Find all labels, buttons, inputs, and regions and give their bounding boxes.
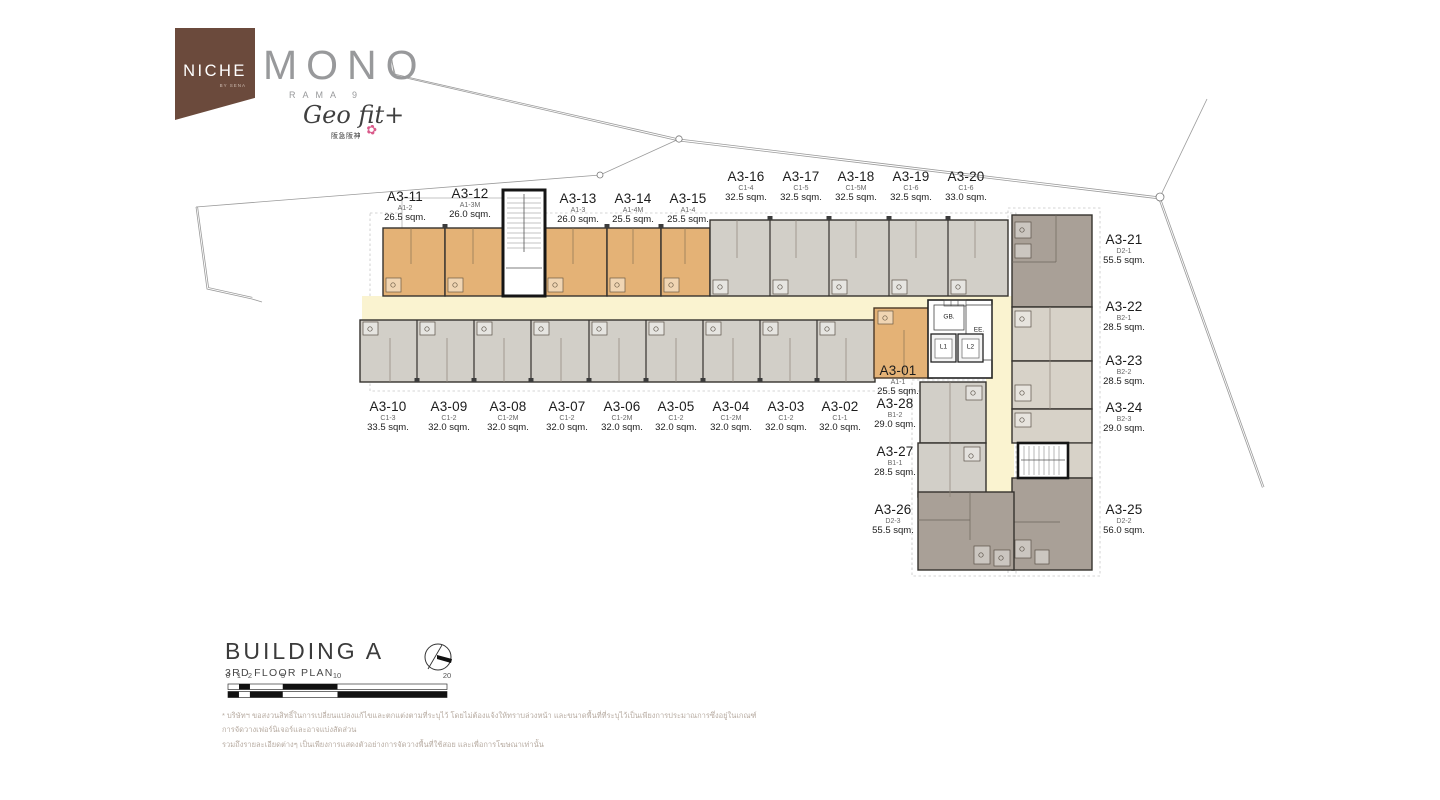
unit-label-A3-28: A3-28B1-229.0 sqm. [874, 397, 916, 430]
unit-unit-text: A3-24 [1103, 401, 1145, 415]
unit-type-text: B1-2 [874, 412, 916, 419]
unit-label-A3-05: A3-05C1-232.0 sqm. [655, 400, 697, 433]
unit-type-text: C1-5 [780, 185, 822, 192]
unit-area-text: 33.0 sqm. [945, 193, 987, 203]
unit-unit-text: A3-12 [449, 187, 491, 201]
unit-label-A3-16: A3-16C1-432.5 sqm. [725, 170, 767, 203]
unit-area-text: 28.5 sqm. [874, 468, 916, 478]
mono-logo-text: MONO [263, 42, 427, 89]
unit-type-text: B2-2 [1103, 369, 1145, 376]
scale-tick-2: 2 [248, 671, 252, 680]
unit-unit-text: A3-26 [872, 503, 914, 517]
unit-area-text: 28.5 sqm. [1103, 377, 1145, 387]
unit-area-text: 29.0 sqm. [874, 420, 916, 430]
unit-area-text: 26.0 sqm. [449, 210, 491, 220]
compass-icon [425, 644, 452, 670]
rama9-logo-text: RAMA 9 [289, 90, 364, 100]
units-top-gray [710, 220, 1008, 296]
unit-area-text: 25.5 sqm. [612, 215, 654, 225]
unit-area-text: 32.5 sqm. [780, 193, 822, 203]
unit-unit-text: A3-05 [655, 400, 697, 414]
scale-tick-1: 1 [237, 671, 241, 680]
unit-unit-text: A3-16 [725, 170, 767, 184]
unit-unit-text: A3-25 [1103, 503, 1145, 517]
unit-label-A3-24: A3-24B2-329.0 sqm. [1103, 401, 1145, 434]
unit-label-A3-12: A3-12A1-3M26.0 sqm. [449, 187, 491, 220]
unit-type-text: D2-2 [1103, 518, 1145, 525]
unit-unit-text: A3-04 [710, 400, 752, 414]
unit-area-text: 25.5 sqm. [667, 215, 709, 225]
unit-unit-text: A3-09 [428, 400, 470, 414]
unit-unit-text: A3-15 [667, 192, 709, 206]
unit-type-text: C1-5M [835, 185, 877, 192]
unit-unit-text: A3-18 [835, 170, 877, 184]
unit-label-A3-25: A3-25D2-256.0 sqm. [1103, 503, 1145, 536]
unit-type-text: C1-2M [487, 415, 529, 422]
niche-logo-text: NICHE [175, 62, 255, 81]
unit-label-A3-18: A3-18C1-5M32.5 sqm. [835, 170, 877, 203]
unit-type-text: B1-1 [874, 460, 916, 467]
unit-label-A3-22: A3-22B2-128.5 sqm. [1103, 300, 1145, 333]
unit-label-A3-17: A3-17C1-532.5 sqm. [780, 170, 822, 203]
unit-unit-text: A3-08 [487, 400, 529, 414]
unit-area-text: 32.0 sqm. [765, 423, 807, 433]
units-bottom-gray [360, 320, 875, 382]
unit-area-text: 32.0 sqm. [487, 423, 529, 433]
unit-type-text: C1-2 [428, 415, 470, 422]
unit-type-text: C1-2 [765, 415, 807, 422]
stair-right [1018, 443, 1068, 478]
unit-unit-text: A3-07 [546, 400, 588, 414]
unit-type-text: C1-3 [367, 415, 409, 422]
unit-type-text: C1-1 [819, 415, 861, 422]
unit-type-text: B2-1 [1103, 315, 1145, 322]
unit-area-text: 32.0 sqm. [710, 423, 752, 433]
unit-label-A3-14: A3-14A1-4M25.5 sqm. [612, 192, 654, 225]
unit-area-text: 32.0 sqm. [655, 423, 697, 433]
unit-unit-text: A3-14 [612, 192, 654, 206]
unit-unit-text: A3-03 [765, 400, 807, 414]
unit-type-text: A1-3 [557, 207, 599, 214]
geofit-logo-text: Geo fit+ [303, 101, 404, 129]
elevator-l1-label: L1 [940, 344, 947, 351]
unit-type-text: A1-4M [612, 207, 654, 214]
unit-label-A3-08: A3-08C1-2M32.0 sqm. [487, 400, 529, 433]
unit-area-text: 55.5 sqm. [1103, 256, 1145, 266]
unit-label-A3-23: A3-23B2-228.5 sqm. [1103, 354, 1145, 387]
unit-label-A3-09: A3-09C1-232.0 sqm. [428, 400, 470, 433]
unit-label-A3-11: A3-11A1-226.5 sqm. [384, 190, 426, 223]
unit-type-text: B2-3 [1103, 416, 1145, 423]
unit-area-text: 32.5 sqm. [890, 193, 932, 203]
unit-unit-text: A3-27 [874, 445, 916, 459]
unit-area-text: 32.5 sqm. [835, 193, 877, 203]
disclaimer-line-2: รวมถึงรายละเอียดต่างๆ เป็นเพียงการแสดงตั… [222, 738, 762, 752]
unit-type-text: C1-2 [546, 415, 588, 422]
unit-area-text: 32.0 sqm. [428, 423, 470, 433]
disclaimer-line-1: * บริษัทฯ ขอสงวนสิทธิ์ในการเปลี่ยนแปลงแก… [222, 709, 762, 738]
unit-label-A3-03: A3-03C1-232.0 sqm. [765, 400, 807, 433]
unit-unit-text: A3-23 [1103, 354, 1145, 368]
unit-type-text: A1-3M [449, 202, 491, 209]
unit-area-text: 26.5 sqm. [384, 213, 426, 223]
building-title: BUILDING A [225, 638, 384, 665]
unit-area-text: 32.0 sqm. [601, 423, 643, 433]
scale-tick-20: 20 [443, 671, 451, 680]
unit-type-text: D2-1 [1103, 248, 1145, 255]
unit-unit-text: A3-11 [384, 190, 426, 204]
core-block [928, 300, 992, 378]
unit-type-text: A1-2 [384, 205, 426, 212]
unit-label-A3-04: A3-04C1-2M32.0 sqm. [710, 400, 752, 433]
unit-type-text: D2-3 [872, 518, 914, 525]
floor-plan-page: NICHE BY SENA MONO RAMA 9 Geo fit+ 阪急阪神 … [0, 0, 1440, 800]
geofit-logo-subtext: 阪急阪神 [331, 131, 361, 141]
unit-area-text: 29.0 sqm. [1103, 424, 1145, 434]
unit-label-A3-06: A3-06C1-2M32.0 sqm. [601, 400, 643, 433]
unit-type-text: A1-4 [667, 207, 709, 214]
unit-type-text: C1-4 [725, 185, 767, 192]
unit-label-A3-01: A3-01A1-125.5 sqm. [877, 364, 919, 397]
unit-type-text: C1-2 [655, 415, 697, 422]
unit-area-text: 32.0 sqm. [546, 423, 588, 433]
unit-label-A3-15: A3-15A1-425.5 sqm. [667, 192, 709, 225]
unit-type-text: C1-6 [890, 185, 932, 192]
elevator-l2-label: L2 [967, 344, 974, 351]
unit-area-text: 33.5 sqm. [367, 423, 409, 433]
unit-unit-text: A3-20 [945, 170, 987, 184]
scale-tick-0: 0 [226, 671, 230, 680]
unit-unit-text: A3-28 [874, 397, 916, 411]
core-room-gb-label: GB. [943, 314, 954, 321]
unit-label-A3-07: A3-07C1-232.0 sqm. [546, 400, 588, 433]
scale-tick-10: 10 [333, 671, 341, 680]
scale-tick-5: 5 [281, 671, 285, 680]
unit-area-text: 56.0 sqm. [1103, 526, 1145, 536]
niche-logo-subtext: BY SENA [220, 83, 246, 88]
disclaimer-text: * บริษัทฯ ขอสงวนสิทธิ์ในการเปลี่ยนแปลงแก… [222, 709, 762, 752]
unit-label-A3-21: A3-21D2-155.5 sqm. [1103, 233, 1145, 266]
unit-area-text: 26.0 sqm. [557, 215, 599, 225]
unit-type-text: C1-2M [601, 415, 643, 422]
unit-type-text: C1-6 [945, 185, 987, 192]
unit-label-A3-13: A3-13A1-326.0 sqm. [557, 192, 599, 225]
unit-label-A3-19: A3-19C1-632.5 sqm. [890, 170, 932, 203]
unit-unit-text: A3-02 [819, 400, 861, 414]
unit-label-A3-26: A3-26D2-355.5 sqm. [872, 503, 914, 536]
unit-type-text: A1-1 [877, 379, 919, 386]
core-room-ee-label: EE. [974, 327, 984, 334]
unit-area-text: 55.5 sqm. [872, 526, 914, 536]
unit-unit-text: A3-01 [877, 364, 919, 378]
unit-type-text: C1-2M [710, 415, 752, 422]
unit-area-text: 32.0 sqm. [819, 423, 861, 433]
unit-unit-text: A3-10 [367, 400, 409, 414]
unit-unit-text: A3-06 [601, 400, 643, 414]
unit-unit-text: A3-17 [780, 170, 822, 184]
unit-unit-text: A3-13 [557, 192, 599, 206]
unit-unit-text: A3-22 [1103, 300, 1145, 314]
unit-label-A3-10: A3-10C1-333.5 sqm. [367, 400, 409, 433]
unit-label-A3-27: A3-27B1-128.5 sqm. [874, 445, 916, 478]
scale-bar [228, 684, 447, 698]
unit-label-A3-20: A3-20C1-633.0 sqm. [945, 170, 987, 203]
unit-unit-text: A3-21 [1103, 233, 1145, 247]
unit-area-text: 28.5 sqm. [1103, 323, 1145, 333]
unit-area-text: 32.5 sqm. [725, 193, 767, 203]
stair-top [503, 190, 545, 296]
unit-label-A3-02: A3-02C1-132.0 sqm. [819, 400, 861, 433]
unit-unit-text: A3-19 [890, 170, 932, 184]
